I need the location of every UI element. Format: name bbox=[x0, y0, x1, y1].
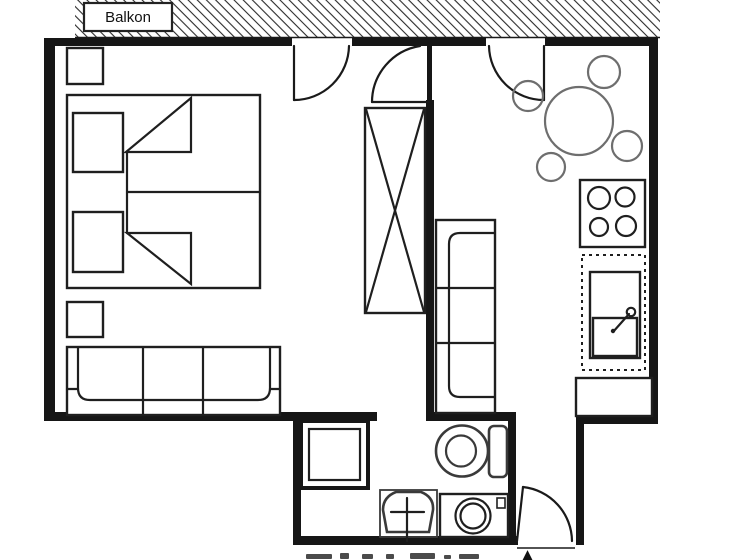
balcony-label: Balkon bbox=[105, 9, 151, 26]
kitchen-counter bbox=[576, 255, 652, 416]
balcony-area: Balkon bbox=[75, 0, 660, 38]
wall-bathroom-right bbox=[508, 415, 516, 545]
faucet-base bbox=[611, 329, 615, 333]
wardrobe bbox=[365, 108, 425, 313]
balcony-door-living bbox=[294, 46, 349, 100]
bathroom bbox=[301, 421, 508, 541]
sink-basin bbox=[593, 318, 637, 356]
double-bed bbox=[67, 95, 260, 288]
wall-middle bbox=[426, 100, 434, 421]
pillow-top bbox=[73, 113, 123, 172]
washing-machine bbox=[440, 494, 508, 537]
toilet-tank bbox=[489, 426, 507, 477]
toilet-bowl bbox=[436, 426, 488, 477]
clipped-caption: ▲ bbox=[306, 546, 535, 560]
wall-top-right bbox=[545, 38, 658, 46]
wall-right bbox=[649, 38, 658, 424]
washbasin bbox=[380, 490, 437, 541]
dining-table bbox=[545, 87, 613, 155]
hall-bench bbox=[436, 220, 495, 413]
stove bbox=[580, 180, 645, 247]
balcony-door-kitchen bbox=[489, 46, 544, 100]
counter-lower bbox=[576, 378, 652, 416]
dining-chair bbox=[513, 81, 543, 111]
wall-top-middle bbox=[352, 38, 486, 46]
kitchen bbox=[513, 56, 652, 416]
interior-door-hall bbox=[372, 46, 429, 102]
dining-chair bbox=[588, 56, 620, 88]
entrance-door bbox=[517, 487, 575, 548]
nightstand-bottom bbox=[67, 302, 103, 337]
nightstand-top bbox=[67, 48, 103, 84]
dining-chair bbox=[612, 131, 642, 161]
floor-plan-drawing: Balkon bbox=[0, 0, 739, 560]
wall-left bbox=[44, 38, 55, 421]
north-arrow-icon: ▲ bbox=[521, 546, 535, 560]
floor-plan: Balkon bbox=[0, 0, 739, 560]
sofa-living bbox=[67, 347, 280, 415]
wall-middle-stub bbox=[427, 44, 432, 102]
shower bbox=[301, 421, 368, 488]
wall-corridor-right bbox=[576, 415, 584, 545]
dining-table-set bbox=[513, 56, 642, 181]
wall-top-left bbox=[44, 38, 292, 46]
bedroom-furniture bbox=[67, 48, 280, 415]
dining-chair bbox=[537, 153, 565, 181]
toilet bbox=[436, 426, 507, 478]
pillow-bottom bbox=[73, 212, 123, 272]
